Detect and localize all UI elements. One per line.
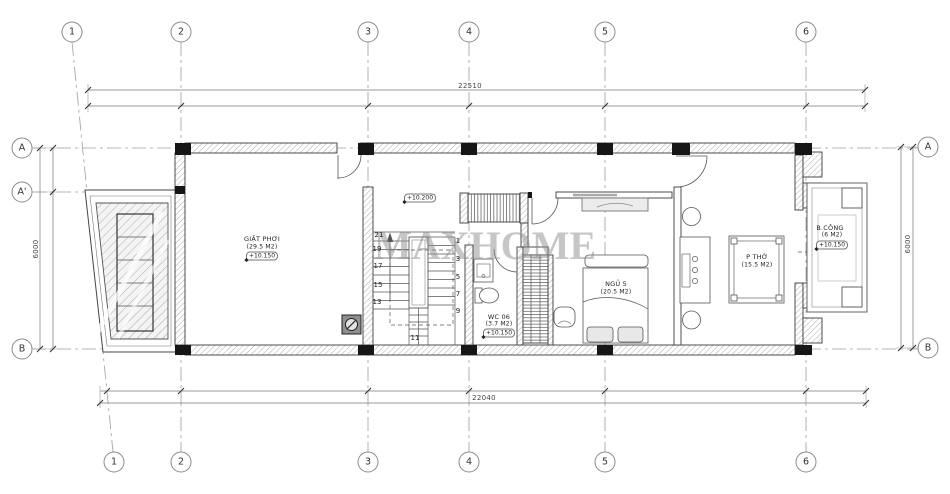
grid-bubble-bottom-4: 4	[459, 452, 480, 473]
room-area-balcony: (6 M2)	[822, 232, 843, 239]
laundry-void	[85, 190, 177, 352]
grid-bubble-bottom-5: 5	[595, 452, 616, 473]
balcony-pier	[842, 287, 862, 307]
grid-bubble-top-5: 5	[595, 22, 616, 43]
grid-bubble-left-A: A	[12, 138, 33, 159]
altar-console	[680, 237, 710, 303]
room-area-worship: (15.5 M2)	[742, 262, 773, 269]
pillow	[587, 327, 613, 342]
grid-bubble-top-1: 1	[62, 22, 83, 43]
stair-step-13: 13	[373, 298, 382, 306]
worship-table	[729, 236, 784, 303]
stair-step-21: 21	[375, 231, 384, 239]
elevation-tag-laundry: +10.150	[246, 252, 278, 261]
grid-bubble-left-B: B	[12, 339, 33, 360]
dim-bottom: 22040	[472, 394, 496, 402]
stair-step-7: 7	[456, 290, 460, 298]
floor-drain	[342, 315, 361, 334]
floor-plan-page: MAXHOME 1 2 3 4 5 6 1 2 3 4 5 6 A A' B A…	[0, 0, 950, 494]
room-area-laundry: (29.5 M2)	[247, 244, 278, 251]
stool	[683, 311, 701, 329]
stair-step-5: 5	[456, 273, 460, 281]
stair-step-11: 11	[411, 334, 420, 342]
elevation-tag-hall: +10.200	[404, 194, 436, 203]
dim-left: 6000	[32, 239, 40, 258]
stool	[683, 208, 701, 226]
grid-bubble-left-A2: A'	[12, 182, 33, 203]
balcony-pier	[842, 188, 862, 208]
grid-bubble-top-2: 2	[171, 22, 192, 43]
grid-bubble-top-4: 4	[459, 22, 480, 43]
toilet-bowl	[480, 288, 499, 303]
grid-bubble-bottom-6: 6	[796, 452, 817, 473]
stair-step-19: 19	[373, 245, 382, 253]
dresser	[582, 198, 648, 211]
elevation-tag-balcony: +10.150	[816, 241, 848, 250]
bedroom-furniture	[554, 198, 648, 343]
room-label-bedroom: NGỦ 5	[605, 280, 627, 288]
dim-right: 6000	[904, 234, 912, 253]
grid-bubble-right-B: B	[918, 338, 939, 359]
stair-step-3: 3	[456, 255, 460, 263]
pillow	[618, 327, 643, 342]
room-label-laundry: GIẶT PHƠI	[244, 235, 280, 243]
hall-louver	[468, 194, 520, 222]
dim-top: 22510	[458, 82, 482, 90]
stair-step-15: 15	[374, 281, 383, 289]
watermark: MAXHOME	[374, 227, 596, 265]
grid-bubble-bottom-3: 3	[358, 452, 379, 473]
room-area-wc: (3.7 M2)	[486, 321, 513, 328]
armchair	[554, 307, 575, 327]
room-label-worship: P THỜ	[746, 253, 768, 261]
grid-bubble-top-6: 6	[796, 22, 817, 43]
stair-step-9: 9	[456, 307, 460, 315]
grid-bubble-bottom-2: 2	[171, 452, 192, 473]
room-area-bedroom: (20.5 M2)	[601, 289, 632, 296]
stair-step-17: 17	[374, 262, 383, 270]
grid-bubble-bottom-1: 1	[104, 452, 125, 473]
stair-step-1: 1	[456, 237, 460, 245]
elevation-tag-wc: +10.150	[483, 329, 515, 338]
shaft-hatch	[523, 255, 548, 343]
grid-bubble-top-3: 3	[358, 22, 379, 43]
grid-bubble-right-A: A	[918, 137, 939, 158]
